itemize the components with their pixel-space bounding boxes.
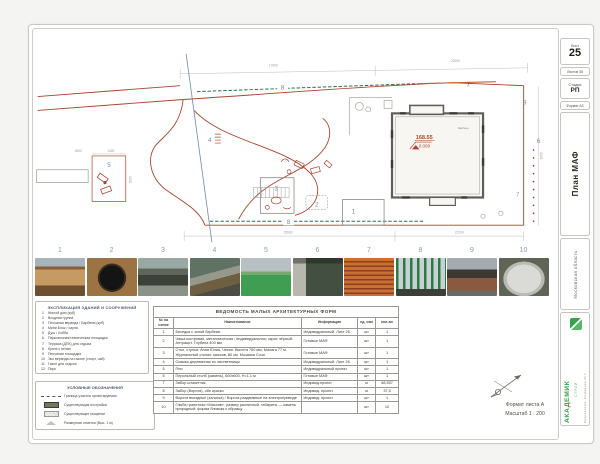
marker-1: 1 [352, 208, 356, 215]
sheets-total: Листов 36 [567, 70, 583, 74]
dim-top-left: 17000 [269, 63, 278, 67]
maf-table: ВЕДОМОСТЬ МАЛЫХ АРХИТЕКТУРНЫХ ФОРМ № на … [153, 306, 399, 414]
legend-title: УСЛОВНЫЕ ОБОЗНАЧЕНИЯ [38, 385, 152, 390]
format-box: Формат А3 [560, 101, 590, 110]
existing-building-symbol [38, 402, 64, 409]
marker-9: 9 [523, 99, 527, 106]
photo-number-8: 8 [396, 247, 446, 254]
cell: м [358, 380, 376, 387]
photo-number-10: 10 [499, 247, 549, 254]
garden-furniture [215, 134, 332, 174]
photo-thumbnail-fire-bowl [87, 258, 137, 296]
cell: Пни [174, 366, 302, 373]
photo-thumbnail-boulder [499, 258, 549, 296]
cell: Индивидуальный. Лист 26 [302, 328, 358, 335]
cell: 1 [376, 366, 399, 373]
photo-number-3: 3 [138, 247, 188, 254]
marker-5: 5 [107, 162, 111, 169]
table-row: 2Чаша костровая, металлическая / индивид… [154, 335, 399, 347]
photo-number-4: 4 [190, 247, 240, 254]
cell: Чаша костровая, металлическая / индивиду… [174, 335, 302, 347]
cell: 1 [376, 335, 399, 347]
cell: шт [358, 347, 376, 359]
legend-item: Существующая постройка [38, 401, 152, 410]
cell: 1 [376, 394, 399, 401]
legend-box: УСЛОВНЫЕ ОБОЗНАЧЕНИЯ Граница участка про… [35, 381, 155, 430]
table-row: 3Стол, стулья: Анна Юлия, Чехия. Высота … [154, 347, 399, 359]
photo-number-9: 9 [447, 247, 497, 254]
developed-by: Разработал: Семенова Ю.Г. [583, 335, 587, 423]
cell: м [358, 387, 376, 394]
cell: 1 [376, 359, 399, 366]
cell: 9 [154, 394, 174, 401]
sheets-total-box: Листов 36 [560, 67, 590, 76]
region-box: Московская область [560, 238, 590, 310]
column-header: кол-во [376, 317, 399, 328]
cell: 1 [376, 347, 399, 359]
cell: 4 [154, 359, 174, 366]
cell: шт [358, 328, 376, 335]
drawing-title-box: План МАФ [560, 112, 590, 236]
paving-symbol [38, 411, 64, 418]
table-row: 8Забор (Ворота), обе краскиИндивид. прое… [154, 387, 399, 394]
marker-7: 7 [467, 82, 471, 89]
table-row: 4Скамья деревянная из лиственницыИндивид… [154, 359, 399, 366]
photo-thumbnail-table-set [138, 258, 188, 296]
sheet-number-box: Лист 25 [560, 38, 590, 65]
courtyard [349, 98, 392, 136]
north-arrow-sketch [481, 369, 531, 401]
marker-8b: 8 [287, 219, 291, 226]
road-edge-line [186, 54, 212, 242]
walkway-paving [253, 188, 289, 198]
table-row: 1Беседка с зоной барбекюИндивидуальный. … [154, 328, 399, 335]
explication-box: ЭКСПЛИКАЦИЯ ЗДАНИЙ И СООРУЖЕНИЙ 1Жилой д… [35, 301, 149, 374]
cell: Забор штакетник [174, 380, 302, 387]
cell: 68,557 [376, 380, 399, 387]
company-logo-icon [570, 318, 582, 330]
marker-7b: 7 [516, 191, 520, 198]
item-number: 12 [38, 367, 48, 372]
cell: Забор (Ворота), обе краски [174, 387, 302, 394]
legend-item: Граница участка проектируемая [38, 392, 152, 401]
dim-4000: 4000 [75, 149, 82, 153]
column-header: № на схеме [154, 317, 174, 328]
photo-strip [35, 258, 555, 296]
column-header: Наименование [174, 317, 302, 328]
sheet-number: 25 [569, 48, 581, 59]
cell: 3 [154, 347, 174, 359]
building-footprint: Щебень 168.55 0.000 [391, 105, 484, 205]
explication-title: ЭКСПЛИКАЦИЯ ЗДАНИЙ И СООРУЖЕНИЙ [38, 305, 146, 310]
marker-4: 4 [208, 137, 212, 144]
cell: Индивидуальный. Лист 26 [302, 359, 358, 366]
maf-table-title: ВЕДОМОСТЬ МАЛЫХ АРХИТЕКТУРНЫХ ФОРМ [154, 307, 399, 318]
cell: 10 [154, 402, 174, 414]
fence-orange [417, 82, 496, 84]
cell: шт [358, 373, 376, 380]
maf-header-row: № на схеме Наименование Информация ед. и… [154, 317, 399, 328]
boundary-symbol [38, 396, 64, 397]
structure-3-furniture [265, 197, 291, 209]
photo-thumbnail-bench [190, 258, 240, 296]
photo-number-1: 1 [35, 247, 85, 254]
stepping-stones [481, 211, 503, 218]
cell: Скамья деревянная из лиственницы [174, 359, 302, 366]
cell: 8 [154, 387, 174, 394]
table-row: 9Ворота въездные (калитка) / Ворота разд… [154, 394, 399, 401]
cell: шт [358, 335, 376, 347]
title-block: Лист 25 Листов 36 Стадия РП Формат А3 Пл… [559, 25, 591, 443]
dim-2000: 2000 [129, 176, 133, 183]
legend-item: Размерная отметка (Выс. 1 м) [38, 419, 152, 428]
cell: 6 [154, 373, 174, 380]
photo-number-5: 5 [241, 247, 291, 254]
cell: Готовые МАФ [302, 335, 358, 347]
marker-8: 8 [281, 85, 285, 92]
cell: Готовые МАФ [302, 347, 358, 359]
cell: Индивидуальный проект [302, 366, 358, 373]
drawing-sheet: 17000 22000 15600 22200 3000 4000 1400 2… [28, 24, 594, 444]
photo-number-7: 7 [344, 247, 394, 254]
cell: Перильный столб (камень), 600х600, Н=1,1… [174, 373, 302, 380]
company-subname: СТРОЙ [574, 337, 578, 397]
photo-numbers-row: 1 2 3 4 5 6 7 8 9 10 [35, 247, 555, 254]
building-label: Щебень [458, 126, 469, 130]
column-header: ед. изм [358, 317, 376, 328]
cell: 1 [154, 328, 174, 335]
dotted-fence-right [533, 149, 535, 222]
marker-6: 6 [537, 138, 541, 145]
cell: 1 [376, 373, 399, 380]
cell: 5 [154, 366, 174, 373]
relief-symbol [38, 421, 64, 425]
cell: Индивид.проект [302, 380, 358, 387]
table-row: 10Глыба гранитная «Массив», размер разли… [154, 402, 399, 414]
marker-2: 2 [315, 201, 319, 208]
photo-thumbnail-playground [241, 258, 291, 296]
cell: 1 [376, 328, 399, 335]
cell: Стол, стулья: Анна Юлия, Чехия. Высота 7… [174, 347, 302, 359]
cell: шт [358, 394, 376, 401]
photo-thumbnail-stone-post [293, 258, 343, 296]
marker-3: 3 [274, 186, 278, 193]
company-name: АКАДЕМИК [564, 333, 571, 423]
table-row: 5ПниИндивидуальный проектшт1 [154, 366, 399, 373]
cell: Индивид. проект [302, 387, 358, 394]
column-header: Информация [302, 317, 358, 328]
stage-value: РП [570, 87, 579, 94]
cell: Готовые МАФ [302, 373, 358, 380]
cell: шт [358, 402, 376, 414]
table-row: 6Перильный столб (камень), 600х600, Н=1,… [154, 373, 399, 380]
elevation-abs: 168.55 [416, 135, 433, 141]
cell: шт [358, 366, 376, 373]
cell: Индивид. проект [302, 394, 358, 401]
cell: шт [358, 359, 376, 366]
dim-1400: 1400 [107, 149, 114, 153]
table-row: 7Забор штакетникИндивид.проектм68,557 [154, 380, 399, 387]
dim-bottom-left: 15600 [284, 231, 293, 235]
elevation-rel: 0.000 [419, 144, 431, 149]
cell: 37,5 [376, 387, 399, 394]
cell: Глыба гранитная «Массив», размер различн… [174, 402, 302, 414]
cell: 7 [154, 380, 174, 387]
page: { "stamp": { "sheet_label": "Лист", "she… [0, 0, 600, 464]
photo-thumbnail-slat-fence [344, 258, 394, 296]
cell [302, 402, 358, 414]
legend-item: Существующее мощение [38, 410, 152, 419]
photo-number-6: 6 [293, 247, 343, 254]
legend-label: Размерная отметка (Выс. 1 м) [64, 421, 113, 425]
photo-thumbnail-gazebo [35, 258, 85, 296]
region-name: Московская область [573, 250, 578, 299]
photo-number-2: 2 [87, 247, 137, 254]
explication-item: 12Пирс [38, 367, 146, 372]
cell: 2 [154, 335, 174, 347]
pier [37, 170, 88, 183]
fence-green-dashed [197, 84, 424, 222]
dim-top-right: 22000 [451, 59, 460, 63]
legend-label: Существующая постройка [64, 403, 107, 407]
company-box: АКАДЕМИК СТРОЙ Разработал: Семенова Ю.Г. [560, 312, 590, 426]
cell: Ворота въездные (калитка) / Ворота раздв… [174, 394, 302, 401]
legend-label: Граница участка проектируемая [64, 394, 116, 398]
site-plan: 17000 22000 15600 22200 3000 4000 1400 2… [34, 51, 556, 245]
area-5-furniture [97, 173, 111, 194]
photo-thumbnail-house [447, 258, 497, 296]
cell: Беседка с зоной барбекю [174, 328, 302, 335]
stage-box: Стадия РП [560, 78, 590, 99]
legend-label: Существующее мощение [64, 412, 105, 416]
photo-thumbnail-gate [396, 258, 446, 296]
dim-bottom-right: 22200 [455, 231, 464, 235]
drawing-area: 17000 22000 15600 22200 3000 4000 1400 2… [32, 28, 559, 440]
drawing-title: План МАФ [571, 151, 580, 196]
cell: 10 [376, 402, 399, 414]
dim-right: 3000 [539, 152, 543, 159]
item-label: Пирс [48, 367, 146, 372]
format-value: Формат А3 [566, 104, 583, 108]
